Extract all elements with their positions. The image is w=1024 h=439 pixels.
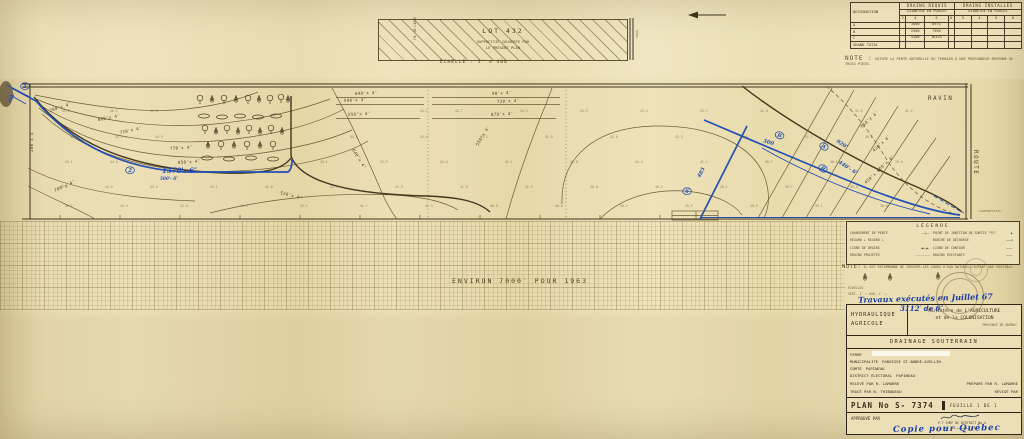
spot-elevation: 44.1 xyxy=(420,109,428,113)
blue-annotation-circle xyxy=(774,131,784,140)
bench-box xyxy=(672,211,718,220)
spot-elevation: 42.9 xyxy=(180,204,188,208)
note-top: NOTE : SUIVRE LA PENTE NATURELLE DU TERR… xyxy=(845,55,1021,66)
spot-elevation: 40.2 xyxy=(830,160,838,164)
title-field: FERME xyxy=(850,351,1018,358)
main-drain-line xyxy=(742,86,962,212)
plan-border xyxy=(22,84,971,219)
blue-annotation-circle xyxy=(21,83,30,90)
blue-annotation: A xyxy=(819,143,826,151)
tree-icon xyxy=(863,273,867,281)
plan-label: RANG xyxy=(635,30,639,38)
blue-annotation: 1 xyxy=(23,84,27,90)
woodlot-boundary xyxy=(291,96,490,212)
north-arrow-icon xyxy=(688,12,726,19)
title-field: MUNICIPALITÉPAROISSE ST-ANDRÉ-AVELLIN xyxy=(850,358,1018,365)
spot-elevation: 42.8 xyxy=(760,109,768,113)
plan-label: 610'x 4″ xyxy=(859,110,879,129)
blue-annotation: 500 xyxy=(762,138,775,147)
note-legend-label: NOTE: xyxy=(842,264,861,270)
legend-col-right: POINT DE JONCTION DE SORTIE "PJ"▲BOUCHE … xyxy=(933,230,1016,259)
drain-fan xyxy=(758,88,950,218)
tree-icon xyxy=(214,127,218,135)
contour-line xyxy=(506,88,552,219)
spot-elevation: 40.6 xyxy=(865,135,873,139)
ravine-dashed xyxy=(826,86,958,215)
legend-item: POINT DE JONCTION DE SORTIE "PJ"▲ xyxy=(933,230,1016,237)
contour-line xyxy=(28,186,95,219)
drawing-sheet: ENVIRON 7000′ POUR 1963 xyxy=(0,0,1024,439)
agricole-label: AGRICOLE xyxy=(851,320,907,329)
spot-elevation: 43.1 xyxy=(700,109,708,113)
spot-elevation: 41.1 xyxy=(700,160,708,164)
spot-elevation: 41.8 xyxy=(740,135,748,139)
plan-label: 550'x 4″ xyxy=(475,125,491,147)
tree-icon xyxy=(270,141,276,150)
spot-elevation: 40.9 xyxy=(490,204,498,208)
tree-icon xyxy=(206,141,210,149)
spot-elevation: 41.9 xyxy=(855,109,863,113)
plan-label: 420'x 4″ xyxy=(871,134,891,153)
blue-annotation: 1370'- 6″ xyxy=(162,166,198,175)
spot-elevation: 41.8 xyxy=(570,160,578,164)
tree-icon xyxy=(202,125,208,134)
title-block: HYDRAULIQUE AGRICOLE Ministère de L'AGRI… xyxy=(846,304,1022,435)
tree-icon xyxy=(224,157,235,161)
tree-icon xyxy=(267,95,273,104)
blue-annotation: 2 xyxy=(127,168,132,174)
scale-label: ÉCHELLE : 1″ = 400′ xyxy=(440,60,512,65)
spot-elevation: 43.4 xyxy=(640,109,648,113)
tree-icon xyxy=(244,141,250,150)
blue-annotation: 6 xyxy=(685,189,689,195)
tree-icon xyxy=(221,95,227,104)
spot-elevation: 45.2 xyxy=(62,109,70,113)
spot-elevation: 44.9 xyxy=(155,135,163,139)
spot-elevation: 42.1 xyxy=(300,204,308,208)
spot-elevation: 44.8 xyxy=(70,135,78,139)
lot-box: LOT 432 SUPERFICIE COUVERTE PAR LE PRÉSE… xyxy=(378,19,628,61)
tree-icon xyxy=(888,273,892,281)
plan-label: 850'x 4″ xyxy=(178,158,201,165)
contour-line xyxy=(35,92,258,111)
plan-label: RAVIN xyxy=(928,96,953,102)
spot-elevation: 42.8 xyxy=(265,185,273,189)
legend-item: CHANGEMENT DE PENTE——|—— xyxy=(850,230,933,237)
tree-icon xyxy=(246,156,257,160)
legend-item: REGARD ⊥ REGARD ⊥ xyxy=(850,237,933,244)
tree-icon xyxy=(210,95,214,103)
valley-line xyxy=(34,97,291,173)
plan-label: 550'x 4″ xyxy=(348,111,371,117)
spot-elevation: 40.4 xyxy=(655,185,663,189)
plan-label: 450'x 4″ xyxy=(863,166,883,185)
tree-icon xyxy=(258,127,262,135)
scan-blemish xyxy=(0,81,13,107)
note-legend: NOTE: IL EST RECOMMANDÉ DE CREUSER LES C… xyxy=(842,264,1022,270)
spot-elevation: 41.7 xyxy=(360,204,368,208)
lot-caption-2: LE PRÉSENT PLAN xyxy=(379,45,627,51)
plan-divider xyxy=(942,401,945,410)
spot-elevation: 44.1 xyxy=(65,160,73,164)
spot-elevation: 43.1 xyxy=(65,204,73,208)
plan-label: (SUPERFICIE) xyxy=(978,209,1002,213)
plan-label: 520'x 4″ xyxy=(280,190,303,200)
tree-icon xyxy=(224,125,230,134)
plan-label: 770'x 4″ xyxy=(170,144,193,151)
plan-label: 280'x 4″ xyxy=(49,101,72,113)
drains-table: DESIGNATION DRAINS REQUIS DRAINS INSTALL… xyxy=(850,2,1022,49)
spot-elevation: 42.9 xyxy=(380,160,388,164)
spot-elevation: 40.6 xyxy=(555,204,563,208)
tree-icon xyxy=(232,141,236,149)
contour-line xyxy=(332,88,397,219)
blue-annotation: 440'- 6″ xyxy=(837,160,860,178)
spot-elevation: 45.8 xyxy=(150,109,158,113)
spot-elevation: 41.2 xyxy=(905,109,913,113)
spot-elevation: 43.1 xyxy=(320,160,328,164)
spot-elevation: 43.9 xyxy=(105,185,113,189)
round-stamp-small xyxy=(964,258,988,282)
blue-drain xyxy=(7,85,30,104)
spot-elevation: 41.2 xyxy=(525,185,533,189)
spot-elevation: 42.1 xyxy=(505,160,513,164)
province-label: PROVINCE DE QUÉBEC xyxy=(908,323,1021,328)
spot-elevation: 43.1 xyxy=(210,185,218,189)
graph-grid xyxy=(0,221,845,310)
title-field-duo: TRACÉ PAR B. THIBODEAURÉVISÉ PAR xyxy=(850,387,1018,395)
spot-elevation: 40.2 xyxy=(620,204,628,208)
contour-line xyxy=(39,108,352,157)
spot-elevation: 39.5 xyxy=(750,204,758,208)
spot-elevation: 41.3 xyxy=(425,204,433,208)
tree-icon xyxy=(936,272,940,280)
blue-drain xyxy=(762,148,930,214)
plan-label: 460'x 4″ xyxy=(875,154,895,173)
spot-elevation: 38.8 xyxy=(880,204,888,208)
feuille-label: FEUILLE 1 DE 1 xyxy=(950,403,998,408)
handwritten-copie: Copie pour Québec xyxy=(893,423,1001,435)
rang-line xyxy=(630,18,633,60)
spot-elevation: 44.6 xyxy=(110,160,118,164)
blue-drain-dashed xyxy=(934,196,964,213)
plan-label: 590'x 4″ xyxy=(344,97,367,103)
title-field: COMTÉPAPINEAU xyxy=(850,365,1018,372)
collector-dotted xyxy=(428,90,566,218)
spot-elevation: 43.6 xyxy=(420,135,428,139)
blue-annotation-circle xyxy=(683,188,692,195)
hydraulique-label: HYDRAULIQUE xyxy=(851,311,907,320)
plan-label: 90'x 4″ xyxy=(492,90,512,96)
blue-annotation: 440' xyxy=(7,92,17,103)
title-hydraulique: HYDRAULIQUE AGRICOLE xyxy=(847,305,908,335)
lot-left-vertical-label: CH. DE LIGNE xyxy=(413,17,417,40)
grid-annotation: ENVIRON 7000′ POUR 1963 xyxy=(452,277,588,285)
spot-elevation: 39.1 xyxy=(815,204,823,208)
designation-header: DESIGNATION xyxy=(851,3,900,23)
signature-icon xyxy=(939,414,985,421)
drain-laterals xyxy=(336,98,560,119)
plan-label: 600'x 4″ xyxy=(97,113,120,122)
blue-drain xyxy=(700,126,747,219)
spot-elevation: 43.9 xyxy=(580,109,588,113)
contour-line xyxy=(42,114,368,172)
legend-col-left: CHANGEMENT DE PENTE——|——REGARD ⊥ REGARD … xyxy=(850,230,933,259)
tree-icon xyxy=(280,127,284,135)
tree-icon xyxy=(218,141,224,150)
plan-label: 720'x 4″ xyxy=(497,98,520,104)
contour-loop xyxy=(562,126,769,218)
contour-line xyxy=(36,99,330,126)
tree-icon xyxy=(278,94,284,103)
spot-elevation: 46.1 xyxy=(110,109,118,113)
title-field-duo: RELEVÉ PAR R. LAMARREPRÉPARÉ PAR R. LAMA… xyxy=(850,379,1018,387)
tree-icon xyxy=(286,95,290,103)
tree-icon xyxy=(271,114,282,118)
legend-item: BOUCHE DE DÉCHARGE———◄ xyxy=(933,237,1016,244)
drains-table-body: A16008975B25007350C410016325GRAND TOTAL xyxy=(851,22,1022,48)
station-ticks xyxy=(60,215,660,219)
tree-icon xyxy=(202,156,213,160)
tree-icon xyxy=(246,125,252,134)
contour-line xyxy=(210,194,458,213)
legend-item: DRAINS PROJETÉS– – – – – xyxy=(850,252,933,259)
spot-elevation: 44.7 xyxy=(455,109,463,113)
spot-elevation: 42.6 xyxy=(610,135,618,139)
plan-label: 280'x 4″ xyxy=(29,129,34,152)
tree-icon xyxy=(234,95,238,103)
contour-line xyxy=(37,103,344,142)
tree-icon xyxy=(245,95,251,104)
spot-elevation: 42.2 xyxy=(675,135,683,139)
tree-icon xyxy=(257,95,261,103)
tree-icon xyxy=(235,114,246,118)
blue-annotation-circle xyxy=(818,141,829,151)
plan-label: 720'x 4″ xyxy=(119,125,142,135)
spot-elevation: 39.3 xyxy=(850,185,858,189)
note-legend-text: IL EST RECOMMANDÉ DE CREUSER LES COURS D… xyxy=(863,265,1014,269)
blue-drain xyxy=(704,120,960,215)
whiteout-patch xyxy=(872,351,950,356)
spot-elevation: 44.3 xyxy=(520,109,528,113)
spot-elevation: 43.8 xyxy=(350,135,358,139)
spot-elevation: 42.9 xyxy=(545,135,553,139)
tree-icon xyxy=(217,115,228,119)
plan-label: 870'x 4″ xyxy=(491,111,514,117)
spot-elevation: 43.2 xyxy=(480,135,488,139)
spot-elevation: 42.4 xyxy=(440,160,448,164)
spot-elevation: 41.9 xyxy=(395,185,403,189)
tree-icon xyxy=(258,141,262,149)
spot-elevation: 45.1 xyxy=(115,135,123,139)
plan-label: 640'x 4″ xyxy=(351,148,367,170)
plan-label: 700'x 4″ xyxy=(53,179,76,193)
legend-item: LIGNE DE DRAINS—▲——▲— xyxy=(850,245,933,252)
plan-label: ROUTE xyxy=(972,150,978,175)
blue-annotation: B xyxy=(818,165,826,173)
tree-icon xyxy=(236,127,240,135)
spot-elevation: 40.1 xyxy=(720,185,728,189)
spot-elevation: 40.7 xyxy=(765,160,773,164)
tree-icon xyxy=(268,125,274,134)
tree-icon xyxy=(253,115,264,119)
spot-elevation: 41.4 xyxy=(635,160,643,164)
spot-elevation: 42.3 xyxy=(330,185,338,189)
table-row: GRAND TOTAL xyxy=(851,42,1022,49)
spot-elevation: 41.6 xyxy=(460,185,468,189)
spot-elevation: 42.5 xyxy=(240,204,248,208)
drawing-title: DRAINAGE SOUTERRAIN xyxy=(847,336,1021,349)
tree-icon xyxy=(197,95,203,104)
title-fields: FERMEMUNICIPALITÉPAROISSE ST-ANDRÉ-AVELL… xyxy=(847,349,1021,397)
blue-annotation-circle xyxy=(817,163,828,173)
spot-elevation: 40.8 xyxy=(590,185,598,189)
blue-annotation: 920' xyxy=(835,139,849,151)
legend-item: LIGNE DE CONTOUR———— xyxy=(933,245,1016,252)
spot-elevation: 43.3 xyxy=(120,204,128,208)
blue-annotation: B xyxy=(775,132,783,140)
plan-number: PLAN No S- 7374 xyxy=(847,401,934,410)
spot-elevation: 39.9 xyxy=(685,204,693,208)
blue-annotation: 500'- 6″ xyxy=(160,176,178,181)
spot-elevation: 39.8 xyxy=(895,160,903,164)
contour-line xyxy=(28,168,195,201)
title-field: DISTRICT ÉLECTORALPAPINEAU xyxy=(850,372,1018,379)
tree-icon xyxy=(199,114,210,118)
tree-icon xyxy=(268,157,279,161)
contour-line xyxy=(600,191,742,219)
note-top-label: NOTE : xyxy=(845,55,873,62)
blue-annotation-circle xyxy=(126,167,135,174)
spot-elevation: 43.6 xyxy=(60,185,68,189)
blue-drain xyxy=(12,88,292,172)
spot-elevation: 43.4 xyxy=(150,185,158,189)
blue-annotation: 485 xyxy=(696,166,707,179)
spot-elevation: 39.7 xyxy=(785,185,793,189)
plan-label: 640'x 4″ xyxy=(355,90,378,96)
legend-box: LÉGENDE CHANGEMENT DE PENTE——|——REGARD ⊥… xyxy=(846,221,1020,265)
spot-elevation: 41.1 xyxy=(805,135,813,139)
